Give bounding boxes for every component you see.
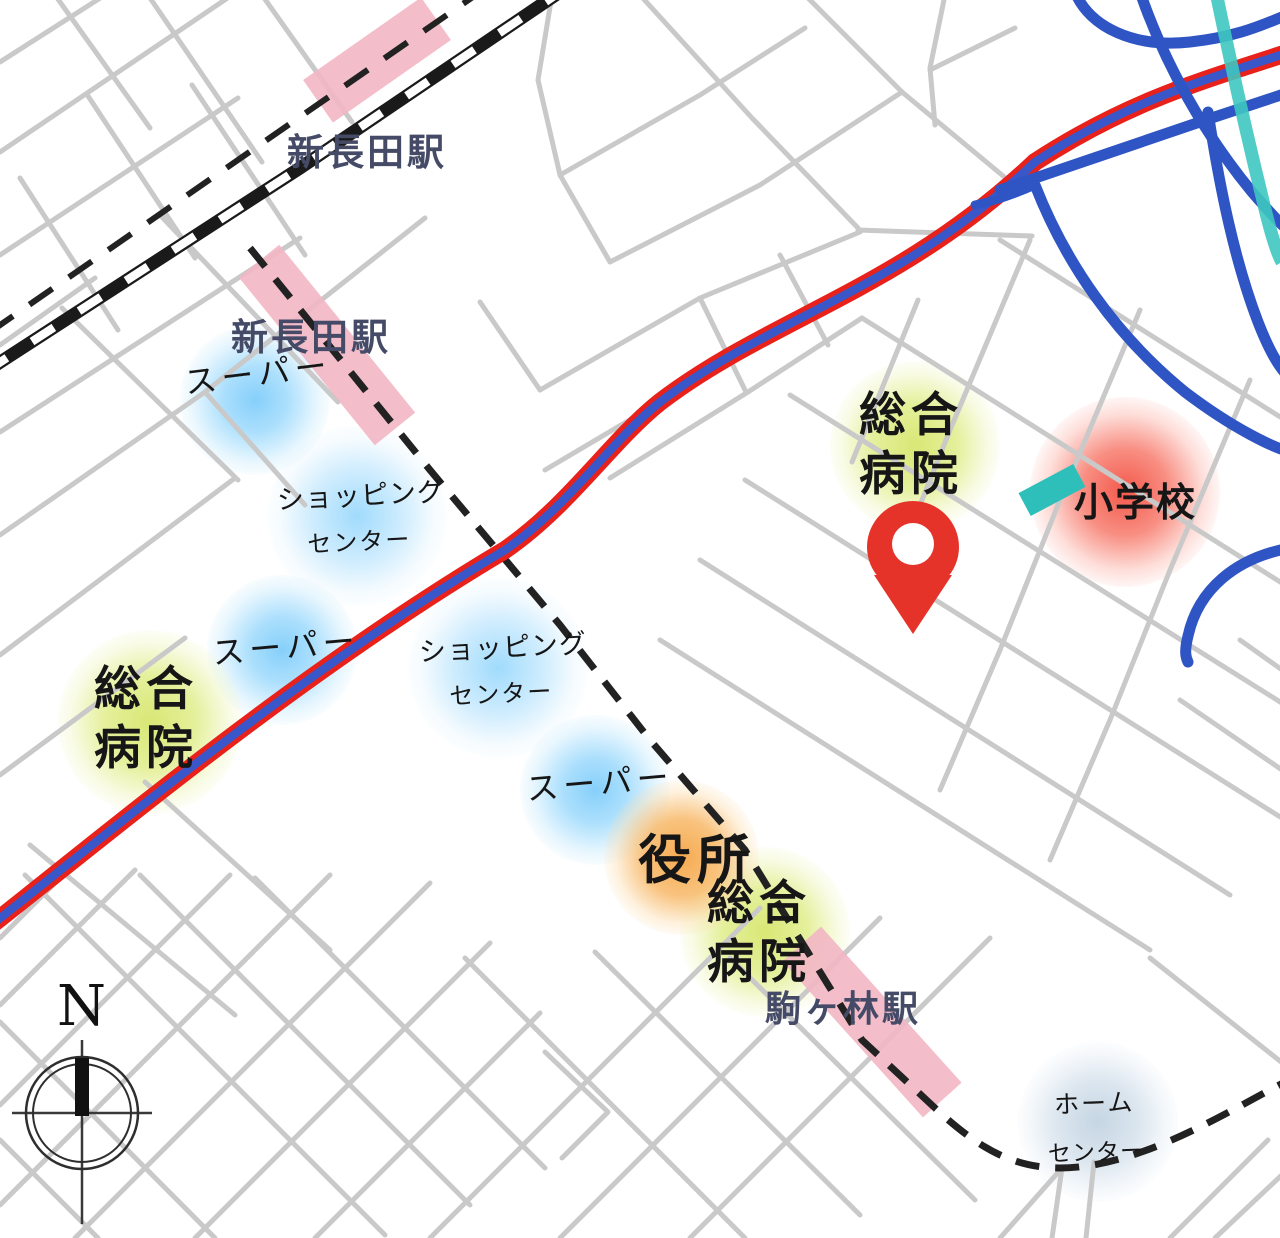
station-highlight-jr-shin-nagata xyxy=(303,0,451,123)
compass-rose xyxy=(12,1040,152,1224)
location-pin[interactable] xyxy=(867,501,959,634)
compass-north-needle xyxy=(75,1058,89,1116)
station-highlights xyxy=(239,0,962,1117)
map-canvas xyxy=(0,0,1280,1238)
street-network xyxy=(0,0,1280,1238)
school-marker-rect xyxy=(1019,464,1086,516)
hand-drawn-neighborhood-map: { "stations": { "jr_shin_nagata": {"name… xyxy=(0,0,1280,1238)
main-road xyxy=(0,52,1280,930)
